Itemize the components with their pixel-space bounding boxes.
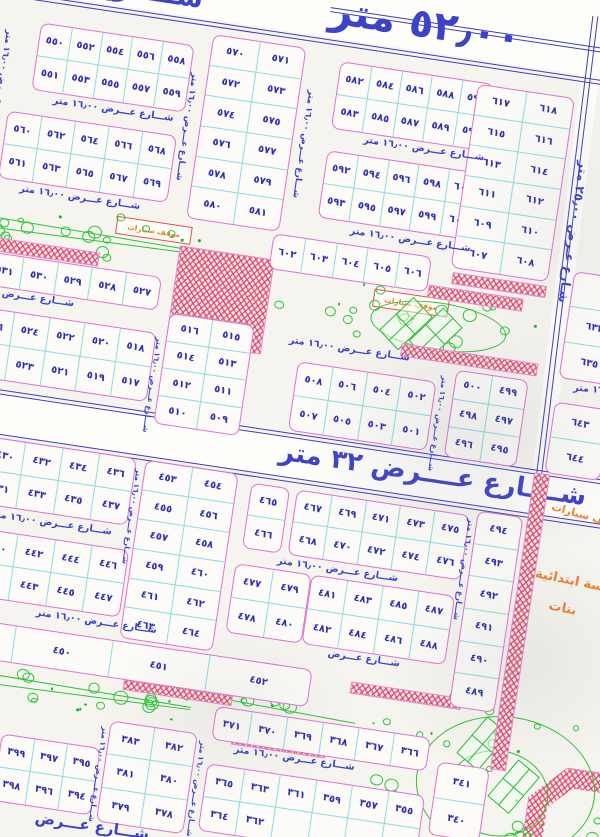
plot-number: ٤٥١ [149,659,169,674]
plot-number: ٤٨٩ [464,685,484,700]
plot: ٤٧٨ [226,598,269,637]
block-b633b: ٦٤٣٦٤٤ [544,402,600,481]
plot-number: ٤٥٢ [248,673,268,688]
plot-number: ٥١٥ [221,329,241,344]
tree-icon [112,690,129,705]
plot-number: ٦١٠ [520,224,540,239]
plot-number: ٥٧٣ [266,83,286,98]
plot: ٣٥٧ [348,786,389,824]
school-label-line2: بنات [547,598,578,618]
plot-number: ٦٠٢ [277,246,297,261]
plot: ٥٥٦ [129,37,164,74]
tree-dot-icon [198,239,201,242]
plot-number: ٦٠٥ [372,260,392,275]
plot: ٣٦٣ [240,770,281,808]
plot-number: ٤٩٤ [488,523,508,538]
plot: ٥٦٩ [134,164,172,202]
plot: ٣٦٩ [284,718,324,755]
plot-number: ٣٦٢ [245,814,265,829]
plot: ٦٠٢ [270,234,306,272]
plot-number: ٥٧٨ [206,167,226,182]
plot-number: ٦١٥ [486,126,506,141]
plot-number: ٥٢٤ [20,324,40,339]
plot: ٤٤٢ [14,535,56,573]
plot-number: ٣٦٥ [214,775,234,790]
plot: ٥٨٦ [398,71,433,108]
plot-number: ٦٣٣ [584,321,600,336]
tree-icon [382,717,391,725]
plot-number: ٥٠٠ [463,380,483,395]
plot: ٤٦٨ [289,522,328,559]
plot: ٥٦٨ [138,132,176,170]
plot: ٥١٨ [116,329,155,368]
tree-dot-icon [430,732,433,735]
block-b341: ٣٤١٣٤٠ [428,761,490,837]
block-b495: ٥٠٠٤٩٩٤٩٨٤٩٧٤٩٦٤٩٥ [444,370,529,468]
block-row: ٤٦٥ [248,484,289,521]
plot-number: ٤٧٨ [237,610,257,625]
plot-number: ٣٤٠ [446,812,466,827]
plot-number: ٥١٩ [85,369,105,384]
plot: ٥٦٠ [4,112,43,150]
plot-number: ٥٥٧ [131,81,151,96]
plot-number: ٤٩٢ [479,588,499,603]
plot-number: ٤٨٥ [389,598,409,613]
block-b465: ٤٦٥٤٦٦ [242,483,290,554]
plot-number: ٤٤٠ [0,540,7,555]
plot-number: ٥٩٤ [361,167,381,182]
plot: ٤٨٧ [414,592,454,631]
plot-number: ٤٤٢ [24,546,44,561]
plot: ٥٢٧ [123,273,161,310]
plot-number: ٥٦٩ [142,176,162,191]
plot-number: ٥٠١ [401,423,421,438]
plot-number: ٤٦٨ [297,533,317,548]
plot-number: ٦٠٣ [309,251,329,266]
plot: ٤٩٥ [480,433,519,467]
tree-dot-icon [59,216,62,219]
plot: ٥٠٩ [196,402,241,435]
plot-number: ٤٣٧ [100,498,120,513]
plot-number: ٤٦٦ [254,527,274,542]
plot-number: ٤٩٩ [498,385,518,400]
plot-number: ٥٢٢ [55,330,75,345]
plot-number: ٤٤٥ [56,585,76,600]
plot: ٣٦٢ [235,802,276,837]
plot: ٦٠٨ [500,244,552,281]
plot-number: ٥١٧ [121,374,141,389]
plot-number: ٣٦٩ [293,729,313,744]
plot-number: ٤٩٦ [454,437,474,452]
plot: ٥٨٧ [393,104,428,141]
plot: ٥٣٠ [19,258,58,295]
tree-icon [374,285,386,296]
plot: ٥٦٣ [33,149,72,187]
plot-number: ٣٧٠ [258,723,278,738]
plot: ٥٢٣ [5,346,45,385]
plot: ٥٩٤ [354,156,389,193]
plot-number: ٥٧٠ [225,46,245,61]
plot: ٤٣٢ [21,443,63,481]
plot: ٥٥٠ [37,24,72,61]
plot-number: ٥٠٩ [209,411,229,426]
plot: ٤٨٦ [374,620,415,659]
plot-number: ٤٧٣ [406,516,426,531]
plot-number: ٣٩٧ [39,750,59,765]
plot [271,808,312,837]
plot: ٥٨٩ [423,109,458,146]
plot-number: ٤٦٧ [302,501,322,516]
tree-icon [274,300,285,310]
plot-number: ٥٠٤ [372,384,392,399]
plot: ٣٤٠ [429,798,484,837]
tree-icon [349,306,358,315]
plot-number: ٤٩٨ [458,408,478,423]
plot-number: ٤٥٨ [194,537,214,552]
plot-number: ٥١٤ [175,350,195,365]
scanned-plot-map: ٥٢٫٠٠ متر شــــارع شــــارع عــــرض ٣٢ م… [0,0,600,837]
plot: ٥٩٦ [385,160,420,197]
plot-number: ٥٨٥ [370,111,390,126]
plot-number: ٥١٠ [167,405,187,420]
plot-number: ٥٥٤ [105,43,125,58]
plot-number: ٥٧٩ [252,174,272,189]
plot-number: ٣٧٨ [153,806,173,821]
plot: ٤٨٣ [343,581,384,620]
plot-number: ٥٨٧ [400,115,420,130]
plot: ٣٧٠ [248,712,288,749]
plot: ٤٣٦ [95,454,136,492]
plot: ٤٨٩ [450,673,498,712]
plot-number: ٤٩٧ [494,413,514,428]
plot: ٥٥٤ [98,33,133,70]
plot-number: ٤٤٦ [98,557,118,572]
plot: ٥٥٣ [63,61,98,98]
tree-dot-icon [84,703,87,706]
plot: ٦٠٥ [364,248,400,286]
plot: ٥٨٠ [187,187,238,224]
plot-number: ٥٥٢ [75,39,95,54]
plot-number: ٣٩٥ [71,755,91,770]
plot: ٥٨١ [233,194,283,231]
tree-icon [352,330,361,339]
plot: ٤٧٧ [231,564,274,603]
plot-number: ٤٣٤ [69,460,89,475]
plot: ٣٦٦ [390,734,429,771]
plot-number: ٤٨٤ [348,627,368,642]
plot: ٣٦٤ [199,797,240,835]
plot: ٤٧٣ [397,506,436,543]
block-row: ٣٤٠ [429,798,484,837]
plot-number: ٤٧٤ [401,549,421,564]
plot: ٦٠٤ [332,244,368,282]
plot: ٤٨٠ [264,604,306,643]
plot-number: ٦٤٣ [570,416,590,431]
plot-number: ٥٧٤ [215,107,235,122]
plot-number: ٤٧٢ [366,543,386,558]
plot: ٥٦٦ [105,127,144,165]
plot-number: ٥٨٣ [339,106,359,121]
plot: ٥٨٢ [337,62,372,99]
plot-number: ٥٥٣ [70,72,90,87]
plot-number: ٥٢٩ [63,274,83,289]
plot-number: ٥٦٧ [109,171,129,186]
plot-number: ٦١٧ [490,96,510,111]
plot-number: ٣٤١ [451,776,471,791]
plot: ٥٥٥ [93,65,128,102]
plot-number: ٣٥٥ [394,802,414,817]
plot: ٥١٠ [154,395,200,428]
plot-number: ٤٤٣ [19,579,39,594]
plot-number: ٣٨١ [115,766,135,781]
tree-dot-icon [372,722,375,725]
block-b477: ٤٧٧٤٧٩٤٧٨٤٨٠ [225,563,312,644]
plot-number: ٤٤٧ [93,590,113,605]
plot-number: ٥١٨ [126,340,146,355]
plot-number: ٤٥٧ [148,530,168,545]
plot-number: ٥٧٥ [261,113,281,128]
plot: ٦٠٦ [395,253,430,291]
tree-icon [342,314,353,324]
plot-number: ٣٦٤ [209,809,229,824]
plot: ٥٩٩ [410,198,445,235]
plot: ٥٨٣ [332,95,367,132]
plot: ٥٢٤ [10,313,50,352]
plot-number: ٤٧٧ [242,576,262,591]
plot-number: ٣٨٠ [158,773,178,788]
plot-number: ٦١١ [477,187,497,202]
plot-number: ٣٨٣ [120,733,140,748]
plot-number: ٦١٤ [529,164,549,179]
plot [307,813,348,837]
plot-number: ٣٥٩ [322,792,342,807]
plot-number: ٤٣٠ [0,449,15,464]
plot: ٤٦٦ [243,515,284,552]
plot-number: ٣٩٩ [6,745,26,760]
plot-number: ٥٦٠ [13,123,33,138]
block-row: ٤٨٩ [450,673,498,712]
plot: ٥٦٢ [38,117,77,155]
plot: ٥٦٥ [66,154,105,192]
plot: ٥٦١ [0,144,38,182]
tree-dot-icon [76,708,79,711]
plot-number: ٥٠٧ [298,408,318,423]
plot-number: ٤٨٠ [275,616,295,631]
plot-number: ٥٧١ [271,53,291,68]
plot-number: ٤٣٢ [32,454,52,469]
plot-number: ٤٨٢ [312,621,332,636]
tree-dot-icon [170,718,173,721]
plot-number: ٣٦٣ [250,781,270,796]
plot: ٥٠٨ [294,362,333,401]
plot-number: ٥٢٧ [132,284,152,299]
plot-number: ٥٨١ [248,205,268,220]
plot: ٤٧١ [362,501,401,538]
plot-number: ٤٧٩ [280,582,300,597]
plot: ٤٨٢ [303,609,344,648]
plot: ٤٧٤ [392,538,431,575]
plot: ٥٠٤ [363,373,402,412]
plot: ٤٨٤ [338,615,379,654]
plot-number: ٥١٦ [179,323,199,338]
plot: ٤٦٥ [248,484,289,521]
plot-number: ٥٥٩ [161,86,181,101]
tree-icon [572,725,579,732]
school-label-line1: مدرسة ابتدائية [534,566,600,599]
plot: ٤٨١ [308,576,349,615]
plot-number: ٦٠٩ [472,217,492,232]
plot-number: ٣٧١ [222,718,242,733]
plot-number: ٤٧٠ [332,538,352,553]
plot: ٤٣٥ [53,481,95,519]
tree-icon [369,773,384,787]
plot-number: ٥٦٢ [46,128,66,143]
plot-number: ٥٥٨ [166,53,186,68]
plot: ٥٠٥ [323,401,362,440]
plot-number: ٥٦٣ [41,161,61,176]
plot: ٥٨٨ [428,76,463,113]
plot-number: ٥٢١ [50,364,70,379]
plot-number: ٥٧٦ [211,137,231,152]
plot-number: ٥٩٦ [392,171,412,186]
plot: ٥٩٨ [415,165,450,202]
plot: ٥٨٤ [367,67,402,104]
plot-number: ٦٣٥ [579,356,599,371]
plot: ٤٨٨ [409,625,449,664]
plot-number: ٥٦٦ [114,138,134,153]
plot: ٤٣٧ [90,487,131,525]
plot: ٥٢٠ [81,323,121,362]
tree-dot-icon [181,239,184,242]
plot: ٥٩٣ [319,184,354,221]
plot: ٣٩٧ [30,739,68,777]
plot-number: ٣٦٧ [364,739,384,754]
plot: ٥٢١ [40,352,80,391]
plot: ٥٥١ [32,56,67,93]
plot-number: ٤٨٨ [419,637,439,652]
plot: ٣٦٨ [319,723,359,760]
plot-number: ٥٨٠ [202,198,222,213]
plot-number: ٥٢٣ [14,358,34,373]
plot-number: ٦١٢ [524,194,544,209]
plot-number: ٥٩٧ [387,204,407,219]
plot-number: ٤٦٠ [190,566,210,581]
block-b378: ٣٨٣٣٨٢٣٨١٣٨٠٣٧٩٣٧٨ [96,720,198,834]
plot-number: ٤٣٣ [27,487,47,502]
plot: ٥١٧ [111,362,150,401]
block-b570: ٥٧٠٥٧١٥٧٢٥٧٣٥٧٤٥٧٥٥٧٦٥٧٧٥٧٨٥٧٩٥٨٠٥٨١ [186,34,306,232]
plot-number: ٥٢٨ [97,279,117,294]
plot-number: ٥٧٧ [257,144,277,159]
tree-icon [116,213,126,222]
plot-number: ٦٠٨ [515,255,535,270]
plot-number: ٥٩٣ [326,195,346,210]
plot: ٤٩٦ [445,428,485,462]
plot-number: ٥٦٤ [80,133,100,148]
plot: ٥٩٧ [380,193,415,230]
plot: ٤٧٩ [269,570,311,609]
plot-number: ٣٩٦ [34,783,54,798]
plot-number: ٦١٦ [534,133,554,148]
tree-dot-icon [534,325,537,328]
plot-number: ٤٣١ [0,482,10,497]
plot-number: ٥٨٨ [435,87,455,102]
plot-number: ٣٨٢ [163,740,183,755]
tree-icon [101,253,111,263]
plot-number: ٥٠٢ [406,389,426,404]
tree-dot-icon [79,708,82,711]
plot: ٥٩٥ [349,189,384,226]
tree-icon [142,225,150,233]
plot-number: ٤٨٦ [383,632,403,647]
plot-number: ٤٥٣ [157,471,177,486]
block-b517: ٥٢٦٥٢٤٥٢٢٥٢٠٥١٨٥٢٥٥٢٣٥٢١٥١٩٥١٧ [0,306,157,402]
plot-number: ٤٦٥ [258,494,278,509]
plot: ٥٥٧ [124,70,159,107]
plot-number: ٤٥٥ [153,500,173,515]
plot: ٤٧٠ [323,527,362,564]
plot-number: ٤٧٥ [440,522,460,537]
plot: ٦٤٤ [545,437,600,480]
plot: ٥٦٤ [71,122,110,160]
plot-number: ٤٣٥ [64,493,84,508]
plot: ٣٩٩ [0,735,35,773]
plot: ٥٢٢ [45,318,85,357]
plot-number: ٣٧٩ [110,800,130,815]
plot-number: ٥٨٢ [344,73,364,88]
plot-number: ٤٩٥ [490,442,510,457]
plot: ٥٠٣ [358,406,397,445]
plot: ٣٦٧ [355,728,395,765]
block-b509: ٥١٦٥١٥٥١٤٥١٣٥١٢٥١١٥١٠٥٠٩ [153,313,255,436]
plot-number: ٣٩٤ [66,788,86,803]
plot: ٣٧١ [212,707,252,744]
plot-number: ٥٨٦ [405,82,425,97]
plot-number: ٥٠٨ [303,374,323,389]
plot-number: ٥٩٨ [422,176,442,191]
plot: ٥٩٢ [324,151,359,188]
plot: ٥٠٦ [328,367,367,406]
plot: ٥٢٩ [54,263,93,300]
plot-number: ٦٠٦ [403,265,423,280]
block-row: ٤٦٦ [243,515,284,552]
plot-number: ٤٩٣ [483,555,503,570]
plot: ٥٠١ [392,411,430,450]
plot-number: ٤٧٦ [435,554,455,569]
plot: ٤٦٧ [293,491,332,528]
map-canvas: ٥٢٫٠٠ متر شــــارع شــــارع عــــرض ٣٢ م… [0,0,600,837]
plot-number: ٤٥٠ [52,644,72,659]
plot: ٥٥٢ [68,28,103,65]
plot-number: ٤٨١ [317,587,337,602]
plot: ٤٤٤ [51,540,93,578]
tree-icon [324,305,337,317]
plot-number: ٥٨٤ [374,78,394,93]
tree-icon [167,229,176,237]
plot: ٤٤٣ [9,567,51,605]
plot-number: ٥٧٢ [220,76,240,91]
block-row: ٦٤٤ [545,437,600,480]
plot-number: ٥٨٩ [430,120,450,135]
plot: ٥١٩ [76,357,116,396]
plot-number: ٥١٢ [171,377,191,392]
plot-number: ٥٦٥ [75,166,95,181]
plot: ٣٥٩ [312,781,353,819]
plot: ٤٨٥ [379,586,420,625]
tree-dot-icon [337,302,340,305]
tree-icon [96,701,106,710]
plot: ٣٩٦ [26,772,64,810]
